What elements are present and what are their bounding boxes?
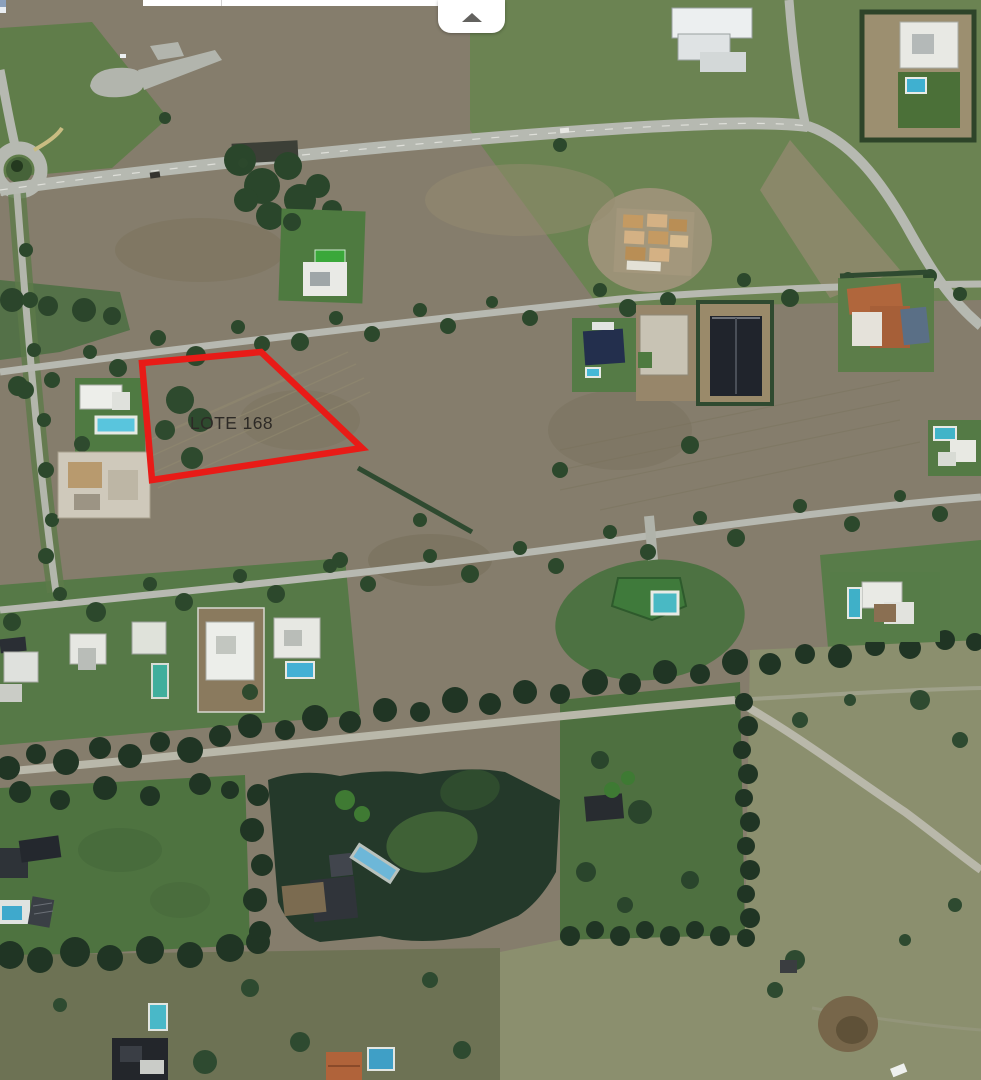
panel-edge-divider	[221, 0, 222, 6]
collapse-panel-button[interactable]	[438, 0, 505, 33]
car	[120, 54, 126, 58]
lot-label: LOTE 168	[190, 413, 273, 433]
satellite-map[interactable]: LOTE 168	[0, 0, 981, 1080]
car	[560, 128, 569, 134]
corner-ui-artifact	[0, 0, 6, 13]
chevron-up-icon	[462, 13, 482, 22]
listing-map-screen: LOTE 168	[0, 0, 981, 1080]
